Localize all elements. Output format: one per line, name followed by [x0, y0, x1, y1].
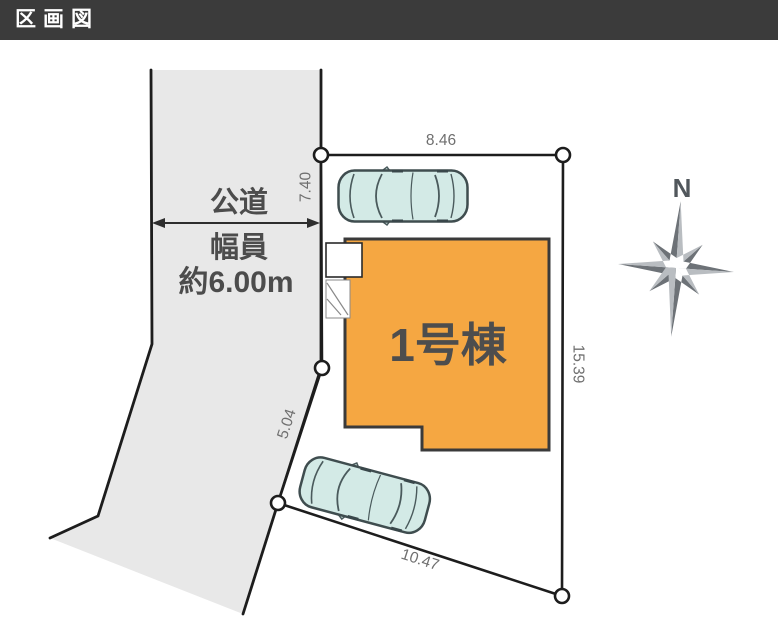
boundary-vertex	[556, 148, 570, 162]
page-title: 区画図	[0, 0, 778, 40]
boundary-vertex	[555, 589, 569, 603]
dimension-right: 15.39	[570, 345, 587, 384]
plot-map-canvas: 公道 幅員 約6.00m 1号棟 8.46 7.40 5.04 15.39 10…	[0, 0, 778, 632]
compass-rose: N	[613, 173, 738, 341]
plot-map-page: 区画図 公道 幅員 約	[0, 0, 778, 632]
road-label-value: 約6.00m	[178, 266, 293, 299]
building-label: 1号棟	[389, 319, 508, 371]
header-bar: 区画図	[0, 0, 778, 40]
car-top-icon	[339, 167, 468, 225]
dimension-top: 8.46	[426, 132, 456, 149]
road-label-type: 公道	[210, 186, 268, 219]
boundary-vertex	[315, 361, 329, 375]
road-label-width: 幅員	[210, 231, 268, 264]
boundary-vertex	[314, 148, 328, 162]
dimension-upper-left: 7.40	[298, 172, 315, 203]
compass-light-facets	[613, 197, 738, 341]
porch	[326, 243, 362, 277]
boundary-vertex	[271, 496, 285, 510]
road-area	[50, 70, 321, 614]
compass-north-label: N	[673, 173, 692, 203]
